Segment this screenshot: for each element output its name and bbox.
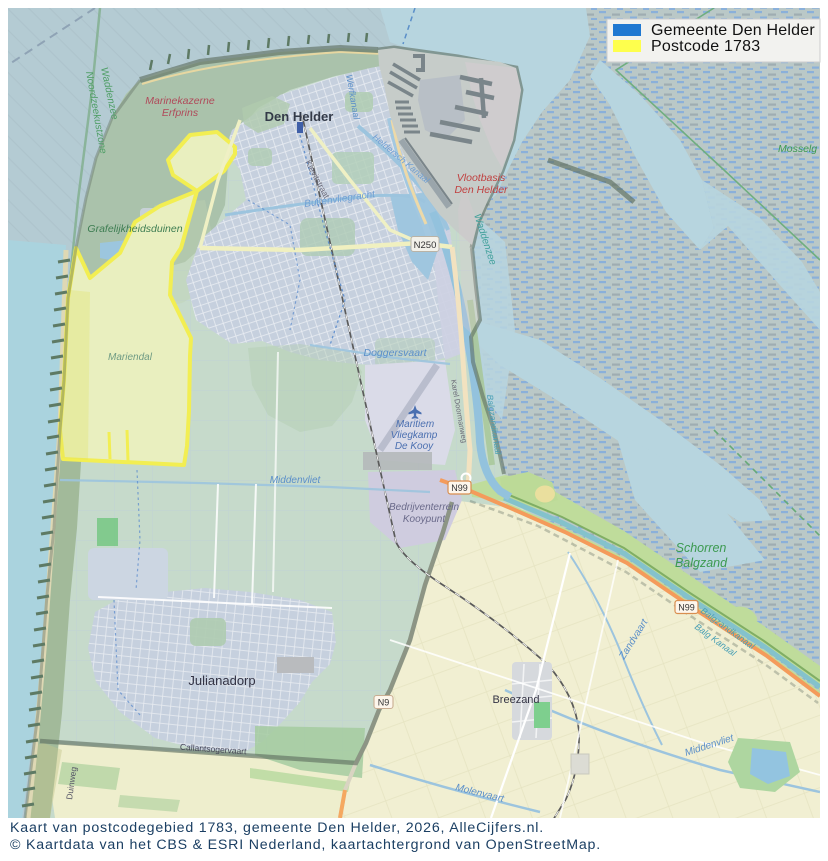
svg-text:Kooypunt: Kooypunt <box>403 514 446 525</box>
svg-text:N250: N250 <box>414 240 437 251</box>
svg-text:Doggersvaart: Doggersvaart <box>363 347 427 359</box>
svg-text:Grafelijkheidsduinen: Grafelijkheidsduinen <box>87 223 182 235</box>
svg-text:Julianadorp: Julianadorp <box>188 673 255 688</box>
svg-text:Middenvliet: Middenvliet <box>270 475 322 486</box>
svg-text:Postcode 1783: Postcode 1783 <box>651 38 760 55</box>
svg-text:Marinekazerne: Marinekazerne <box>145 95 215 107</box>
svg-text:N99: N99 <box>678 603 695 613</box>
svg-text:Balgzand: Balgzand <box>675 556 728 570</box>
svg-text:Mariendal: Mariendal <box>108 352 153 363</box>
svg-text:De Kooy: De Kooy <box>395 441 434 452</box>
svg-text:Den Helder: Den Helder <box>265 109 334 124</box>
svg-text:Vliegkamp: Vliegkamp <box>391 430 438 441</box>
svg-text:Schorren: Schorren <box>676 541 727 555</box>
svg-text:Erfprins: Erfprins <box>162 107 199 119</box>
svg-text:Maritiem: Maritiem <box>396 419 434 430</box>
svg-text:© Kaartdata van het CBS & ESRI: © Kaartdata van het CBS & ESRI Nederland… <box>10 837 601 853</box>
svg-text:Gemeente Den Helder: Gemeente Den Helder <box>651 22 815 39</box>
svg-text:N99: N99 <box>451 483 468 493</box>
svg-text:Den Helder: Den Helder <box>454 184 508 196</box>
svg-text:Vlootbasis: Vlootbasis <box>457 172 506 184</box>
svg-text:Breezand: Breezand <box>492 694 539 706</box>
svg-text:N9: N9 <box>378 697 390 707</box>
svg-text:Bedrijventerrein: Bedrijventerrein <box>389 502 459 513</box>
svg-text:Mosselg: Mosselg <box>778 143 817 155</box>
svg-text:Kaart van postcodegebied 1783,: Kaart van postcodegebied 1783, gemeente … <box>10 820 544 836</box>
